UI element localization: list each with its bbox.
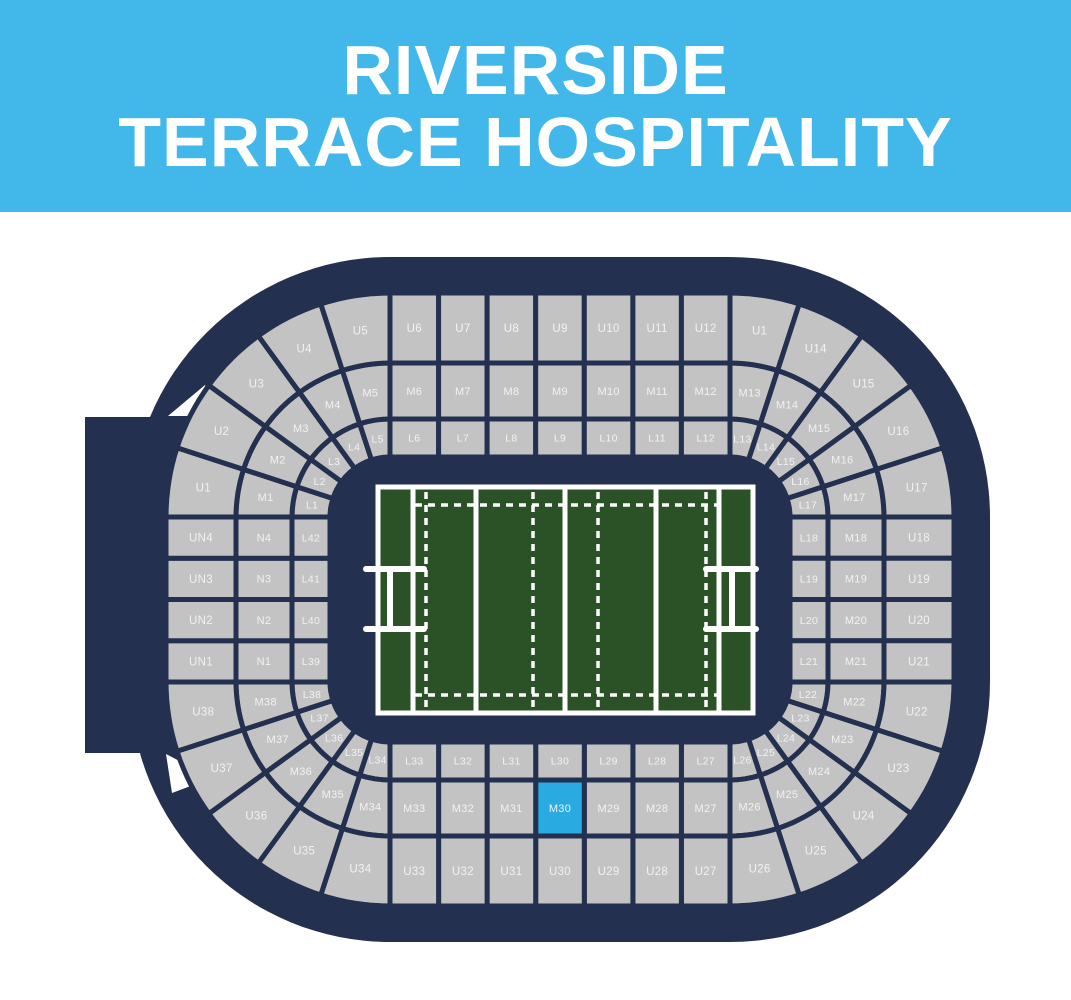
- section-M30[interactable]: [536, 780, 585, 836]
- section-U33[interactable]: [390, 836, 439, 906]
- stadium-map-area: L1L2L3L4L5L6L7L8L9L10L11L12L13L14L15L16L…: [0, 212, 1071, 1000]
- section-N4[interactable]: [236, 517, 292, 558]
- section-M19[interactable]: [828, 558, 884, 599]
- section-M10[interactable]: [584, 363, 633, 419]
- section-M20[interactable]: [828, 600, 884, 641]
- section-L8[interactable]: [487, 419, 536, 457]
- section-U10[interactable]: [584, 293, 633, 363]
- section-M32[interactable]: [439, 780, 488, 836]
- section-M31[interactable]: [487, 780, 536, 836]
- section-L20[interactable]: [790, 600, 828, 641]
- section-L10[interactable]: [584, 419, 633, 457]
- section-L27[interactable]: [681, 742, 730, 780]
- section-U9[interactable]: [536, 293, 585, 363]
- section-M21[interactable]: [828, 641, 884, 682]
- section-M7[interactable]: [439, 363, 488, 419]
- section-UN2[interactable]: [166, 600, 236, 641]
- section-U31[interactable]: [487, 836, 536, 906]
- section-UN4[interactable]: [166, 517, 236, 558]
- section-L11[interactable]: [633, 419, 682, 457]
- section-M28[interactable]: [633, 780, 682, 836]
- section-L30[interactable]: [536, 742, 585, 780]
- section-M12[interactable]: [681, 363, 730, 419]
- section-U20[interactable]: [884, 600, 954, 641]
- section-L42[interactable]: [292, 517, 330, 558]
- page-title-line-2: TERRACE HOSPITALITY: [118, 106, 952, 178]
- section-N1[interactable]: [236, 641, 292, 682]
- section-L32[interactable]: [439, 742, 488, 780]
- section-U12[interactable]: [681, 293, 730, 363]
- section-L29[interactable]: [584, 742, 633, 780]
- section-L6[interactable]: [390, 419, 439, 457]
- pitch: [366, 487, 756, 713]
- page-title-line-1: RIVERSIDE: [342, 34, 728, 106]
- stadium-map: L1L2L3L4L5L6L7L8L9L10L11L12L13L14L15L16L…: [0, 212, 1071, 1000]
- section-M29[interactable]: [584, 780, 633, 836]
- section-U6[interactable]: [390, 293, 439, 363]
- section-L40[interactable]: [292, 600, 330, 641]
- header-banner: RIVERSIDE TERRACE HOSPITALITY: [0, 0, 1071, 212]
- section-L18[interactable]: [790, 517, 828, 558]
- section-L12[interactable]: [681, 419, 730, 457]
- section-U7[interactable]: [439, 293, 488, 363]
- section-N3[interactable]: [236, 558, 292, 599]
- section-M8[interactable]: [487, 363, 536, 419]
- section-U27[interactable]: [681, 836, 730, 906]
- section-U18[interactable]: [884, 517, 954, 558]
- section-U21[interactable]: [884, 641, 954, 682]
- section-L31[interactable]: [487, 742, 536, 780]
- section-U19[interactable]: [884, 558, 954, 599]
- section-M33[interactable]: [390, 780, 439, 836]
- section-M27[interactable]: [681, 780, 730, 836]
- section-L33[interactable]: [390, 742, 439, 780]
- section-U30[interactable]: [536, 836, 585, 906]
- section-L19[interactable]: [790, 558, 828, 599]
- section-L39[interactable]: [292, 641, 330, 682]
- section-U32[interactable]: [439, 836, 488, 906]
- section-L28[interactable]: [633, 742, 682, 780]
- section-U28[interactable]: [633, 836, 682, 906]
- section-UN1[interactable]: [166, 641, 236, 682]
- section-L7[interactable]: [439, 419, 488, 457]
- section-M6[interactable]: [390, 363, 439, 419]
- section-UN3[interactable]: [166, 558, 236, 599]
- section-M9[interactable]: [536, 363, 585, 419]
- section-L41[interactable]: [292, 558, 330, 599]
- section-L21[interactable]: [790, 641, 828, 682]
- section-M18[interactable]: [828, 517, 884, 558]
- section-U11[interactable]: [633, 293, 682, 363]
- section-N2[interactable]: [236, 600, 292, 641]
- section-L9[interactable]: [536, 419, 585, 457]
- section-U8[interactable]: [487, 293, 536, 363]
- section-M11[interactable]: [633, 363, 682, 419]
- section-U29[interactable]: [584, 836, 633, 906]
